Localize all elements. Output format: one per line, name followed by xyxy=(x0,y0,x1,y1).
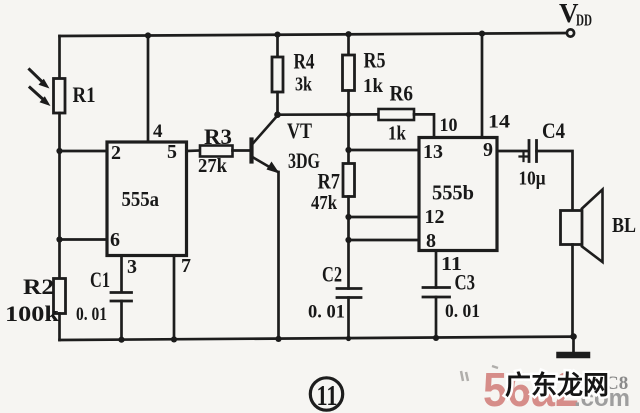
svg-text:C3: C3 xyxy=(455,270,476,295)
svg-text:9: 9 xyxy=(483,139,493,161)
svg-text:47k: 47k xyxy=(311,192,338,214)
svg-text:555a: 555a xyxy=(122,187,160,211)
svg-text:13: 13 xyxy=(423,141,443,163)
svg-text:7: 7 xyxy=(181,255,191,277)
svg-text:C1: C1 xyxy=(90,267,110,292)
svg-text:3DG: 3DG xyxy=(288,148,320,173)
svg-text:555b: 555b xyxy=(432,181,474,205)
svg-text:8: 8 xyxy=(426,230,436,252)
svg-text:11: 11 xyxy=(317,380,338,412)
svg-text:12: 12 xyxy=(425,206,445,228)
svg-text:10: 10 xyxy=(440,115,458,136)
svg-text:6: 6 xyxy=(110,229,120,251)
svg-text:C2: C2 xyxy=(322,262,342,287)
svg-text:C4: C4 xyxy=(542,118,565,143)
svg-text:R1: R1 xyxy=(73,82,96,107)
svg-text:5: 5 xyxy=(167,141,177,163)
svg-text:27k: 27k xyxy=(198,155,228,177)
svg-text:VT: VT xyxy=(287,118,312,143)
svg-text:0. 01: 0. 01 xyxy=(308,302,345,323)
svg-text:14: 14 xyxy=(488,112,511,133)
svg-text:R7: R7 xyxy=(318,169,341,194)
svg-text:R3: R3 xyxy=(204,124,232,149)
svg-text:1k: 1k xyxy=(388,123,407,145)
svg-text:广东龙网: 广东龙网 xyxy=(505,370,609,400)
svg-text:100k: 100k xyxy=(5,301,60,326)
svg-text:3k: 3k xyxy=(295,74,313,96)
svg-text:2: 2 xyxy=(111,142,121,164)
svg-text:3: 3 xyxy=(127,256,137,278)
svg-text:4: 4 xyxy=(153,121,163,142)
svg-text:R5: R5 xyxy=(364,48,386,73)
svg-text:10μ: 10μ xyxy=(519,168,547,190)
svg-text:1k: 1k xyxy=(363,75,384,97)
svg-text:R4: R4 xyxy=(294,49,315,74)
svg-text:BL: BL xyxy=(612,213,636,237)
svg-text:R6: R6 xyxy=(390,81,414,106)
svg-text:0. 01: 0. 01 xyxy=(76,304,107,325)
svg-text:0. 01: 0. 01 xyxy=(445,301,480,322)
svg-text:R2: R2 xyxy=(23,274,54,299)
svg-text:DD: DD xyxy=(576,11,592,30)
